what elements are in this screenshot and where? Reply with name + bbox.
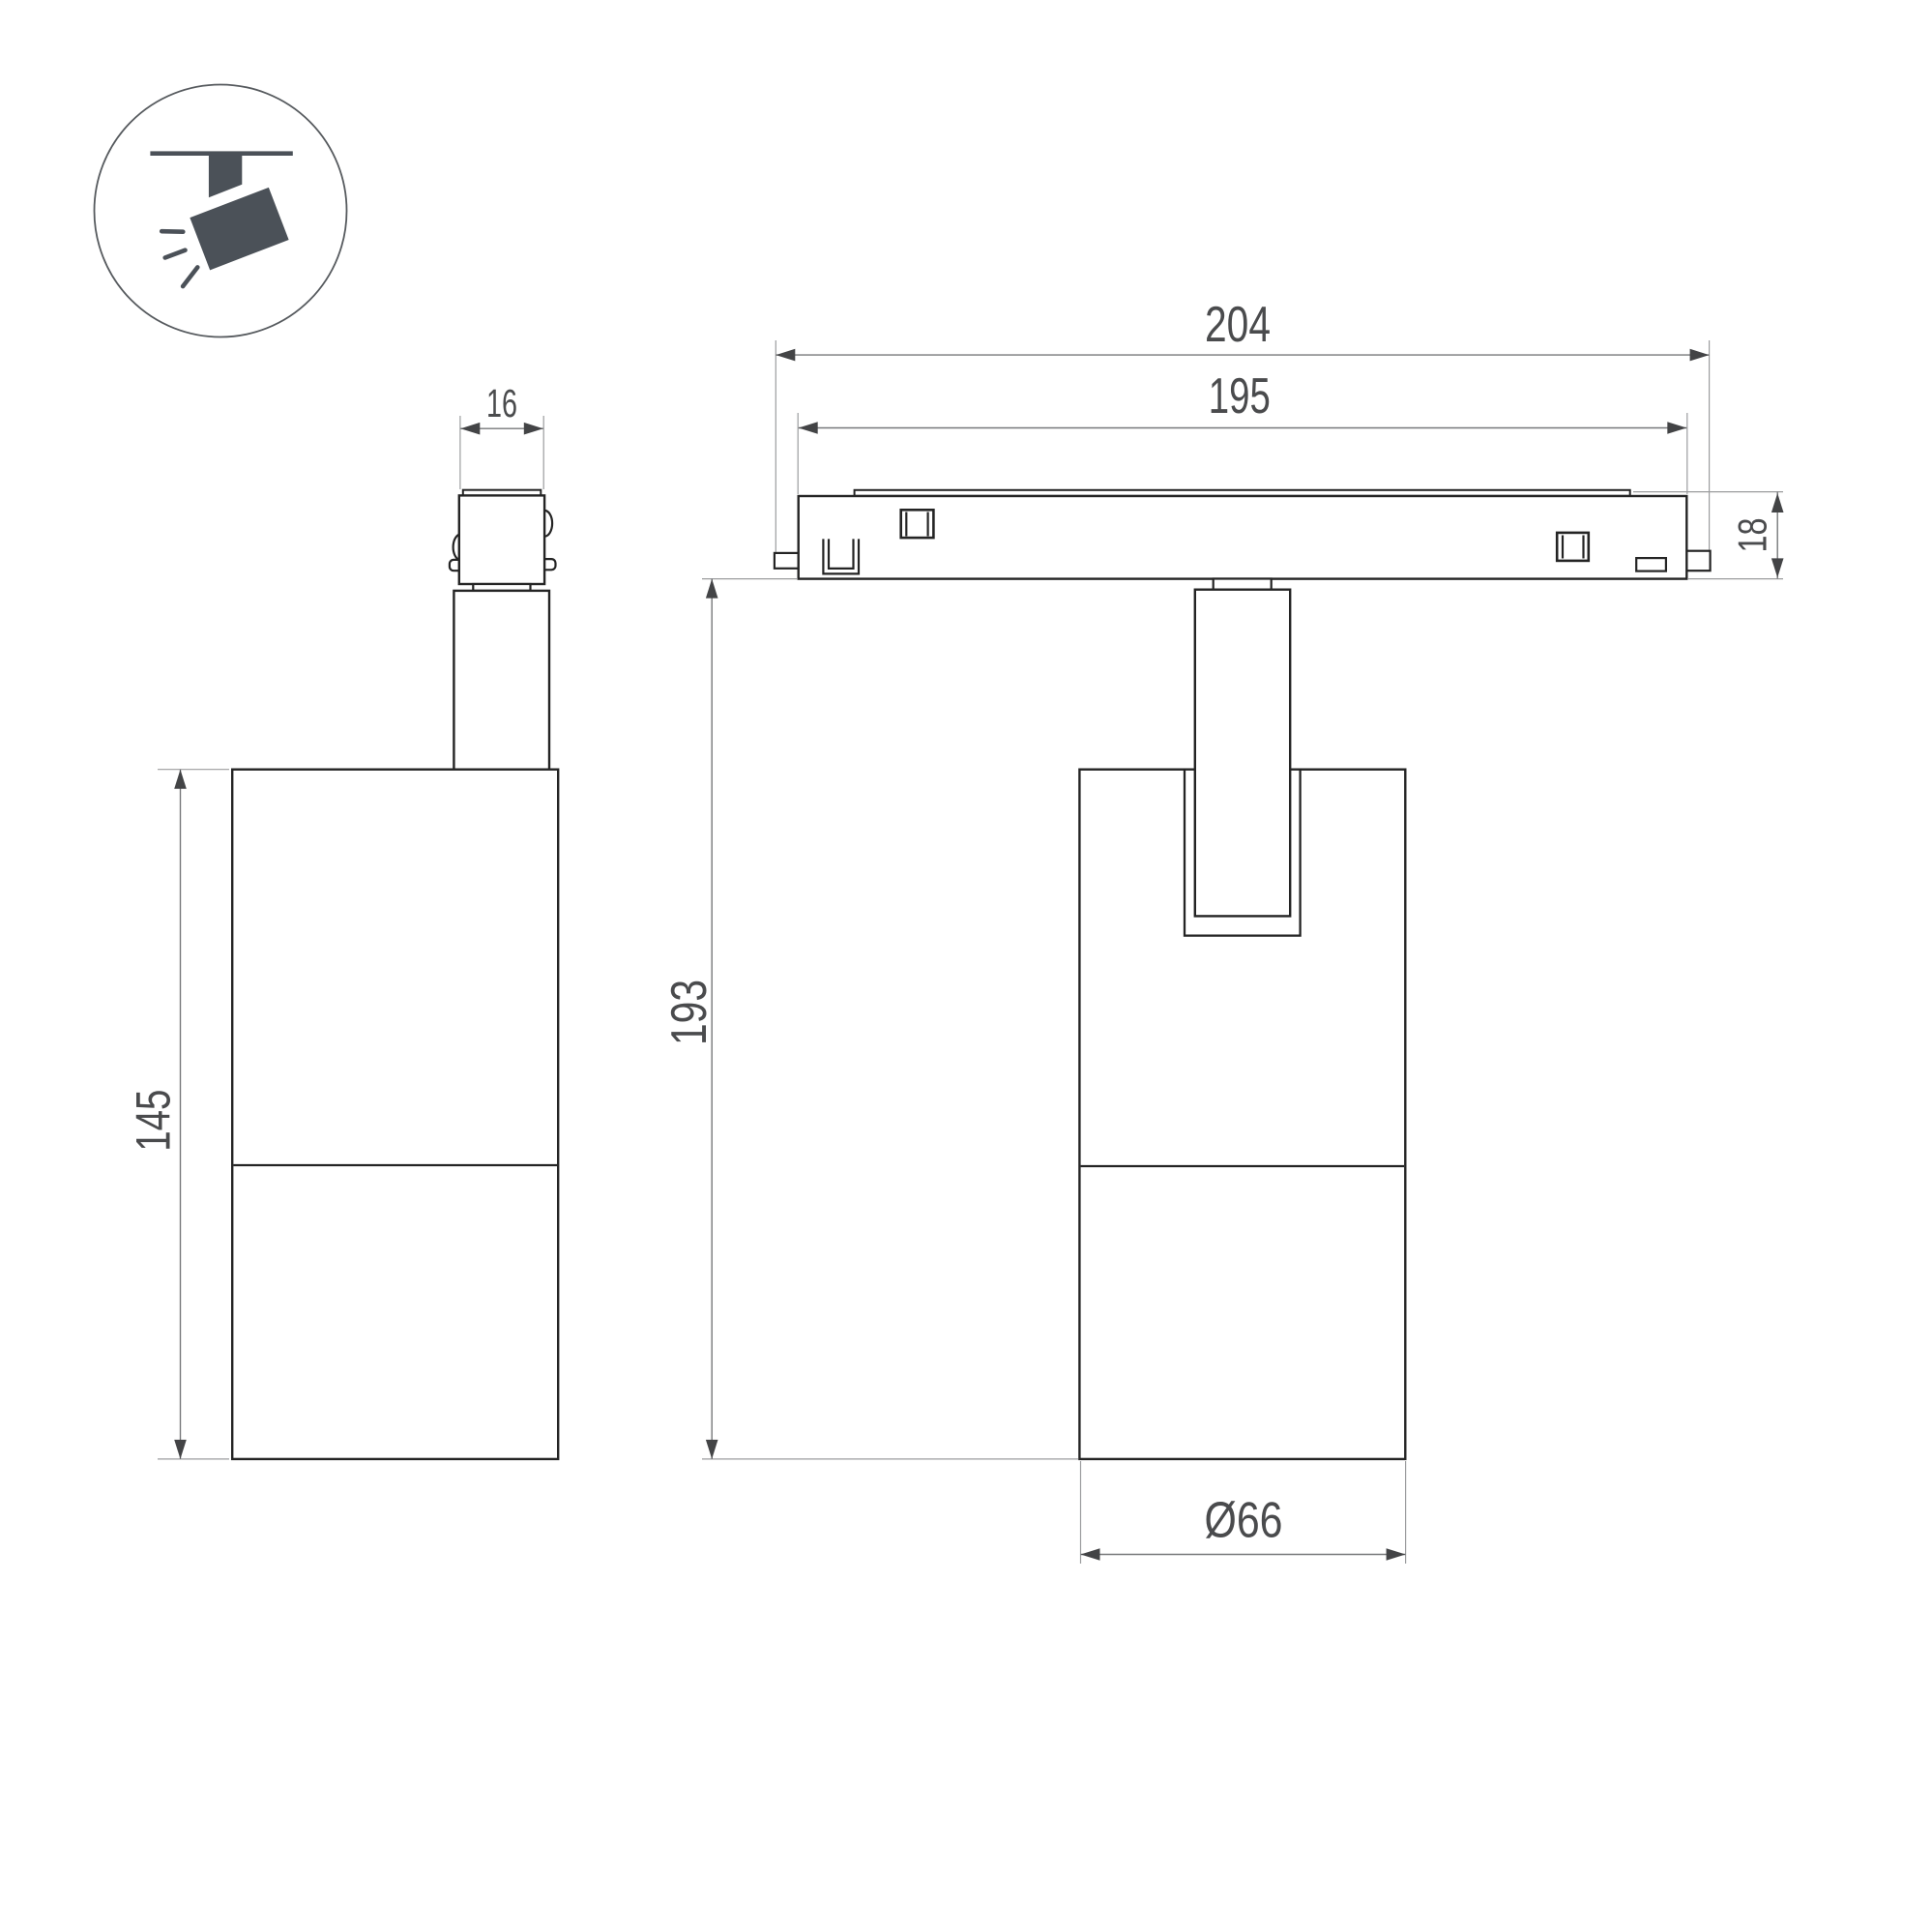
svg-text:204: 204: [1205, 297, 1271, 353]
svg-text:18: 18: [1730, 518, 1775, 553]
svg-text:145: 145: [127, 1090, 181, 1152]
svg-text:Ø66: Ø66: [1205, 1493, 1283, 1549]
svg-text:195: 195: [1209, 368, 1271, 424]
svg-text:193: 193: [661, 980, 717, 1045]
svg-text:16: 16: [486, 381, 517, 425]
